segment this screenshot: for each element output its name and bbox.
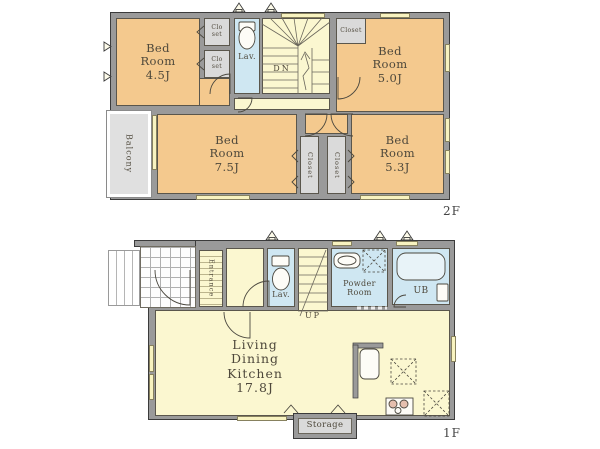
floor-2-tag: 2F [438, 204, 466, 218]
closet-2f-c-label: Closet [340, 28, 362, 35]
ub-label: UB [392, 286, 450, 296]
room-bed-4-5-doorway [200, 78, 230, 106]
stairs-dn-label: DN [264, 64, 300, 73]
closet-2f-c: Closet [336, 18, 366, 44]
closet-2f-a: Clo set [204, 18, 230, 46]
entrance-hall [226, 248, 264, 307]
room-bed-5-3-label: Bed Room 5.3J [380, 134, 415, 174]
balcony: Balcony [106, 110, 152, 198]
room-powder [331, 248, 388, 307]
window [360, 195, 410, 200]
floor-1-tag: 1F [438, 426, 466, 440]
window [281, 13, 325, 18]
window [445, 44, 450, 72]
closet-2f-a-label: Clo set [211, 25, 222, 38]
powder-room-label: Powder Room [331, 279, 388, 297]
room-bed-7-5: Bed Room 7.5J [157, 114, 297, 194]
window [380, 13, 410, 18]
stairs-2f-room [262, 18, 330, 94]
stairs-up-label: UP [296, 311, 330, 320]
window [396, 241, 418, 246]
room-bed-5-3: Bed Room 5.3J [351, 114, 444, 194]
stairs-1f-room [298, 248, 328, 318]
balcony-label: Balcony [124, 134, 133, 173]
entrance-step: Entrance [199, 250, 223, 307]
storage-inner: Storage [298, 418, 352, 434]
approach-steps [108, 250, 140, 306]
closet-2f-b: Clo set [204, 50, 230, 78]
closet-2f-right-label: Closet [333, 152, 340, 179]
closet-2f-left-label: Closet [306, 152, 313, 179]
hall-2f [234, 98, 330, 110]
room-bed-4-5: Bed Room 4.5J [116, 18, 200, 106]
room-bed-5-0-label: Bed Room 5.0J [372, 45, 407, 85]
room-ldk-label: Living Dining Kitchen 17.8J [190, 338, 320, 396]
closet-2f-b-label: Clo set [211, 57, 222, 70]
closet-front-area-2f [305, 114, 348, 134]
window [451, 336, 456, 362]
floorplan-canvas: Balcony Bed Room 4.5J Clo set Clo set La… [0, 0, 600, 449]
window [149, 374, 154, 400]
closet-2f-left: Closet [300, 136, 319, 194]
storage-label: Storage [307, 421, 344, 431]
room-ub [392, 248, 450, 305]
entrance-label: Entrance [207, 259, 214, 297]
window [237, 416, 287, 421]
room-bed-7-5-label: Bed Room 7.5J [209, 134, 244, 174]
room-bed-4-5-label: Bed Room 4.5J [140, 42, 175, 82]
lav-1f-label: Lav. [267, 290, 295, 299]
window [196, 195, 250, 200]
lav-2f-label: Lav. [234, 52, 260, 61]
window [149, 345, 154, 372]
entrance-porch [140, 246, 196, 308]
window [152, 115, 157, 170]
storage: Storage [293, 413, 357, 439]
window [445, 150, 450, 174]
closet-2f-right: Closet [327, 136, 346, 194]
window [332, 241, 352, 246]
window [445, 118, 450, 142]
